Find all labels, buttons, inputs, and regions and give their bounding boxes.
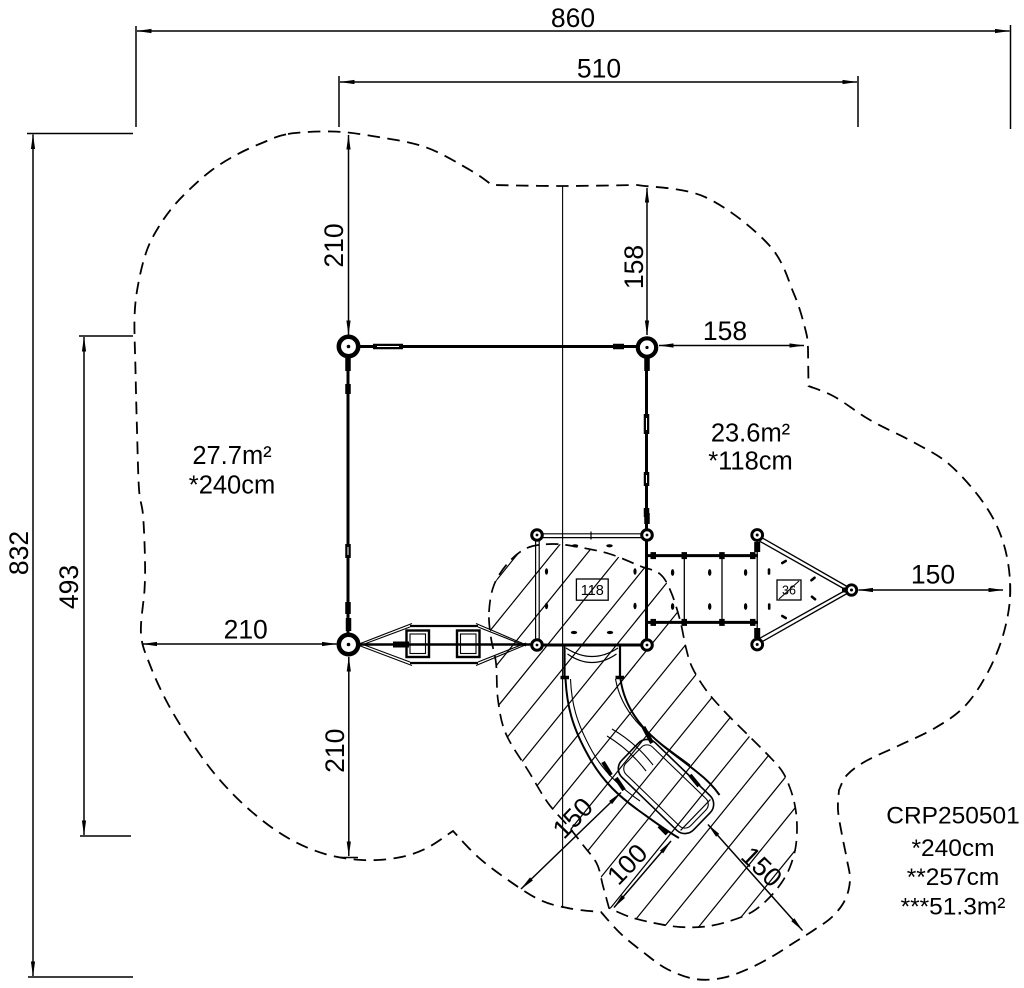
svg-text:**257cm: **257cm xyxy=(907,864,1000,891)
svg-text:210: 210 xyxy=(319,223,349,267)
svg-text:23.6m²: 23.6m² xyxy=(711,419,790,447)
svg-text:210: 210 xyxy=(320,729,350,773)
svg-text:150: 150 xyxy=(911,560,955,590)
svg-text:493: 493 xyxy=(54,565,84,609)
svg-text:832: 832 xyxy=(4,531,34,575)
svg-text:860: 860 xyxy=(551,3,595,33)
svg-text:210: 210 xyxy=(224,614,268,644)
svg-text:***51.3m²: ***51.3m² xyxy=(901,893,1006,920)
svg-text:118: 118 xyxy=(581,583,604,599)
svg-text:*240cm: *240cm xyxy=(911,835,994,862)
svg-text:510: 510 xyxy=(577,54,621,84)
svg-text:158: 158 xyxy=(703,316,747,346)
svg-text:158: 158 xyxy=(619,245,649,289)
svg-text:CRP250501: CRP250501 xyxy=(886,803,1019,830)
svg-text:27.7m²: 27.7m² xyxy=(192,442,271,470)
svg-text:*118cm: *118cm xyxy=(708,447,793,475)
svg-text:*240cm: *240cm xyxy=(189,471,275,499)
